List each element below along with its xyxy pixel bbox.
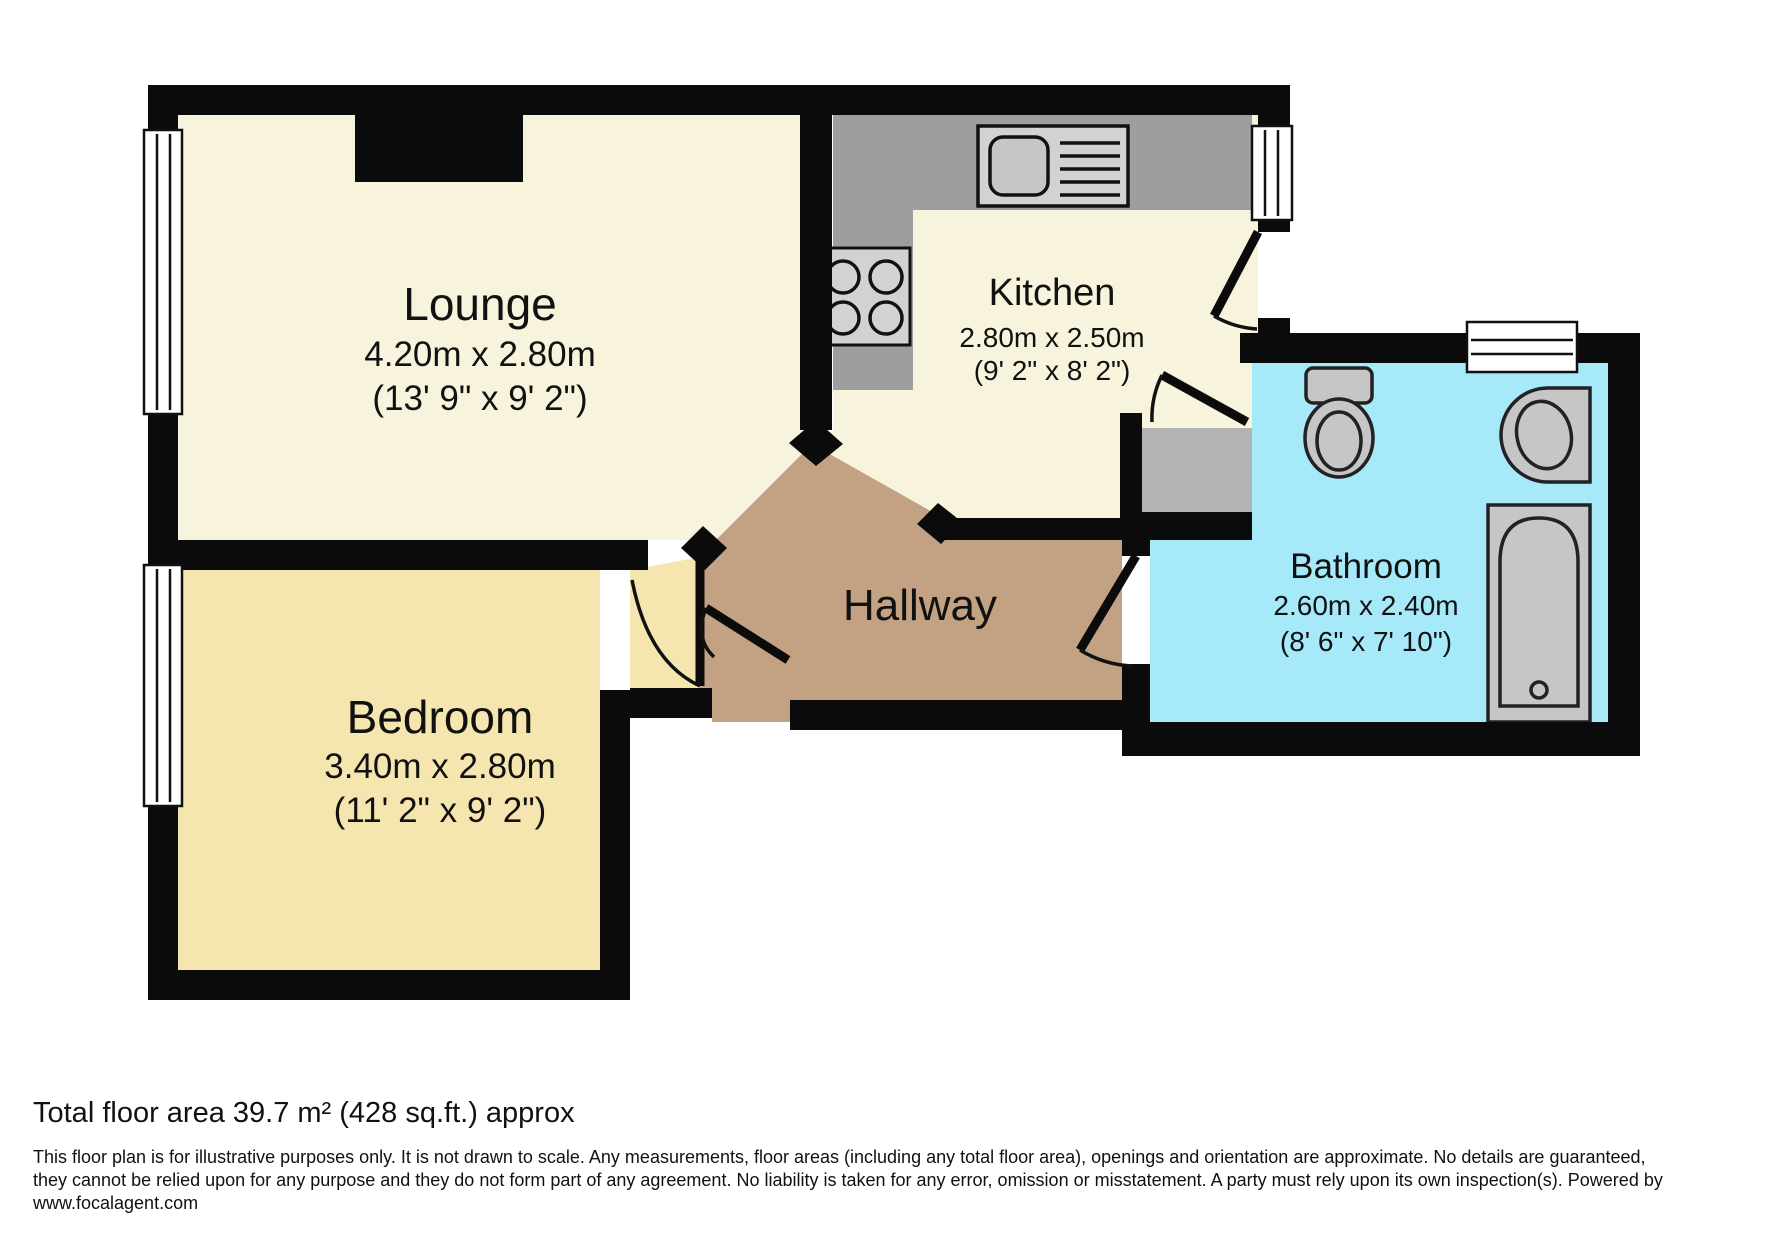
bedroom-dims-metric: 3.40m x 2.80m xyxy=(324,747,556,786)
wall-lounge-notch xyxy=(355,115,523,182)
wall-bathroom-top xyxy=(1240,333,1640,363)
disclaimer-line-3: www.focalagent.com xyxy=(32,1193,198,1213)
kitchen-window xyxy=(1252,126,1292,220)
wall-stub-kitchen-bath xyxy=(1120,413,1142,540)
wall-under-storage xyxy=(1142,512,1252,540)
floor-plan-page: Lounge 4.20m x 2.80m (13' 9" x 9' 2") Ki… xyxy=(0,0,1771,1239)
wall-kitchen-hall xyxy=(940,518,1122,540)
wall-lounge-bedroom-divider xyxy=(148,540,648,570)
bathroom-dims-metric: 2.60m x 2.40m xyxy=(1273,590,1458,621)
footer: Total floor area 39.7 m² (428 sq.ft.) ap… xyxy=(32,1097,1663,1213)
hallway-label: Hallway xyxy=(843,581,997,630)
bedroom-doorway-floor xyxy=(630,557,700,688)
lounge-dims-imperial: (13' 9" x 9' 2") xyxy=(372,379,587,418)
disclaimer-line-2: they cannot be relied upon for any purpo… xyxy=(33,1170,1663,1190)
wall-bedroom-right xyxy=(600,690,630,1000)
wall-top xyxy=(148,85,1290,115)
lounge-label: Lounge xyxy=(403,278,557,330)
total-floor-area: Total floor area 39.7 m² (428 sq.ft.) ap… xyxy=(33,1097,575,1129)
storage-cupboard xyxy=(1142,428,1252,518)
bedroom-dims-imperial: (11' 2" x 9' 2") xyxy=(334,791,547,830)
bedroom-window xyxy=(144,565,182,806)
wall-bath-left-top-stub xyxy=(1122,540,1150,556)
kitchen-dims-imperial: (9' 2" x 8' 2") xyxy=(974,355,1131,386)
wall-bedroom-door-stub xyxy=(630,688,712,718)
floor-plan: Lounge 4.20m x 2.80m (13' 9" x 9' 2") Ki… xyxy=(0,0,1771,1239)
bathroom-label: Bathroom xyxy=(1290,547,1442,586)
sink-bowl-icon xyxy=(990,137,1048,195)
kitchen-label: Kitchen xyxy=(989,272,1116,314)
bathroom-window xyxy=(1467,322,1577,372)
wall-bathroom-bottom xyxy=(1122,722,1640,756)
bedroom-label: Bedroom xyxy=(347,691,534,743)
bathroom-dims-imperial: (8' 6" x 7' 10") xyxy=(1280,626,1452,657)
lounge-dims-metric: 4.20m x 2.80m xyxy=(364,335,596,374)
wall-hall-bottom xyxy=(790,700,1150,730)
wall-lounge-kitchen-divider xyxy=(800,85,832,430)
disclaimer-line-1: This floor plan is for illustrative purp… xyxy=(33,1147,1646,1167)
lounge-window xyxy=(144,130,182,414)
wall-bedroom-bottom xyxy=(148,970,630,1000)
wall-bathroom-right xyxy=(1608,333,1640,756)
kitchen-dims-metric: 2.80m x 2.50m xyxy=(959,322,1144,353)
wall-kitchen-right-corner xyxy=(1258,318,1290,363)
